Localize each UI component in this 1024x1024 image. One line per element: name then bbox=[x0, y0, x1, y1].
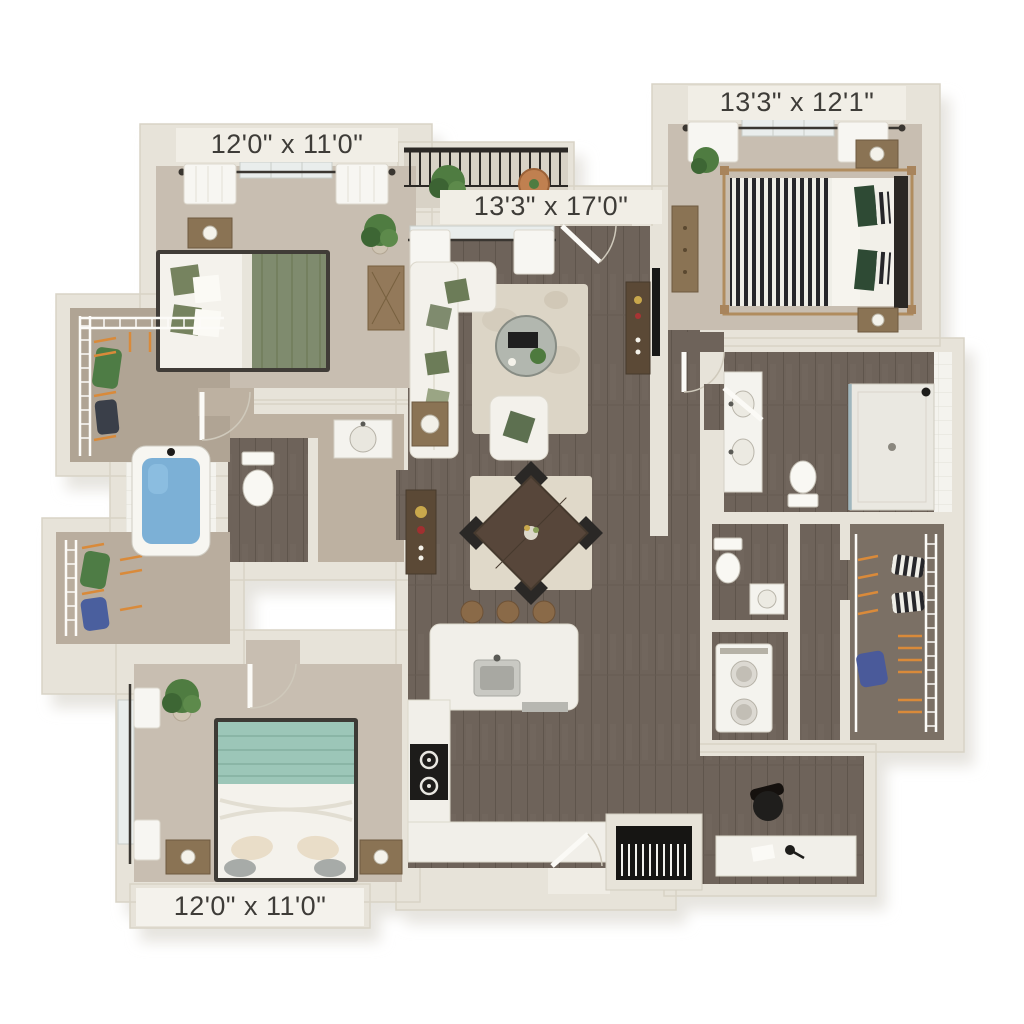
hall-vanity-sink bbox=[350, 426, 376, 452]
tub-bathroom bbox=[132, 446, 210, 556]
closet-wall-a bbox=[840, 518, 850, 560]
coffee-table-candle bbox=[508, 358, 516, 366]
laundry bbox=[716, 644, 772, 732]
kitchen-island bbox=[430, 624, 578, 712]
label-bedroom-top-left: 12'0" x 11'0" bbox=[211, 129, 364, 159]
bedroom3-nightstand-right bbox=[360, 840, 402, 874]
bedroom2-nightstand-top bbox=[856, 140, 898, 168]
side-table-lamp bbox=[421, 415, 439, 433]
bedroom1-nightstand bbox=[188, 218, 232, 248]
bar-stools bbox=[461, 601, 555, 623]
bedroom3-lamp-left bbox=[181, 850, 195, 864]
label-living-room: 13'3" x 17'0" bbox=[474, 191, 629, 221]
hall-toilet bbox=[716, 553, 740, 583]
tv bbox=[652, 268, 660, 356]
toilet-room bbox=[242, 452, 274, 506]
hvac-vent bbox=[606, 814, 702, 890]
bedroom3-lamp-right bbox=[374, 850, 388, 864]
coffee-table-plant bbox=[530, 348, 546, 364]
bedroom2-lamp-top bbox=[870, 147, 884, 161]
bed-2 bbox=[730, 176, 908, 308]
media-console bbox=[626, 282, 650, 374]
floor-plan-render: 12'0" x 11'0" 13'3" x 12'1" 13'3" x 17'0… bbox=[0, 0, 1024, 1024]
bedroom3-nightstand-left bbox=[166, 840, 210, 874]
bedroom2-nightstand-bottom bbox=[858, 308, 898, 332]
faucet bbox=[494, 655, 501, 662]
label-bedroom-bottom-left: 12'0" x 11'0" bbox=[174, 891, 327, 921]
shower-drain bbox=[888, 443, 896, 451]
bed-1 bbox=[156, 250, 330, 372]
bedroom1-desk bbox=[368, 266, 404, 330]
bedroom2-lamp-bottom bbox=[872, 314, 884, 326]
bed-3 bbox=[214, 718, 358, 882]
bathtub bbox=[132, 446, 210, 556]
coffee-table bbox=[496, 316, 556, 376]
hall-vanity bbox=[334, 420, 392, 458]
shower-head bbox=[922, 388, 931, 397]
master-toilet bbox=[788, 461, 818, 507]
tub-faucet bbox=[167, 448, 175, 456]
toilet bbox=[243, 470, 273, 506]
side-table bbox=[412, 402, 448, 446]
range-cooktop bbox=[410, 744, 448, 800]
bedroom2-dresser bbox=[672, 206, 698, 292]
bedroom1-lamp bbox=[203, 226, 217, 240]
floor-plan-svg: 12'0" x 11'0" 13'3" x 12'1" 13'3" x 17'0… bbox=[0, 0, 1024, 1024]
buffet-console bbox=[406, 490, 436, 574]
closet-wall-b bbox=[840, 600, 850, 742]
office-desk bbox=[716, 836, 856, 876]
armchair bbox=[490, 396, 548, 460]
label-bedroom-top-right: 13'3" x 12'1" bbox=[720, 87, 875, 117]
coffee-table-book bbox=[508, 332, 538, 348]
dishwasher-front bbox=[522, 702, 568, 712]
vanity-sink-2 bbox=[732, 439, 754, 465]
